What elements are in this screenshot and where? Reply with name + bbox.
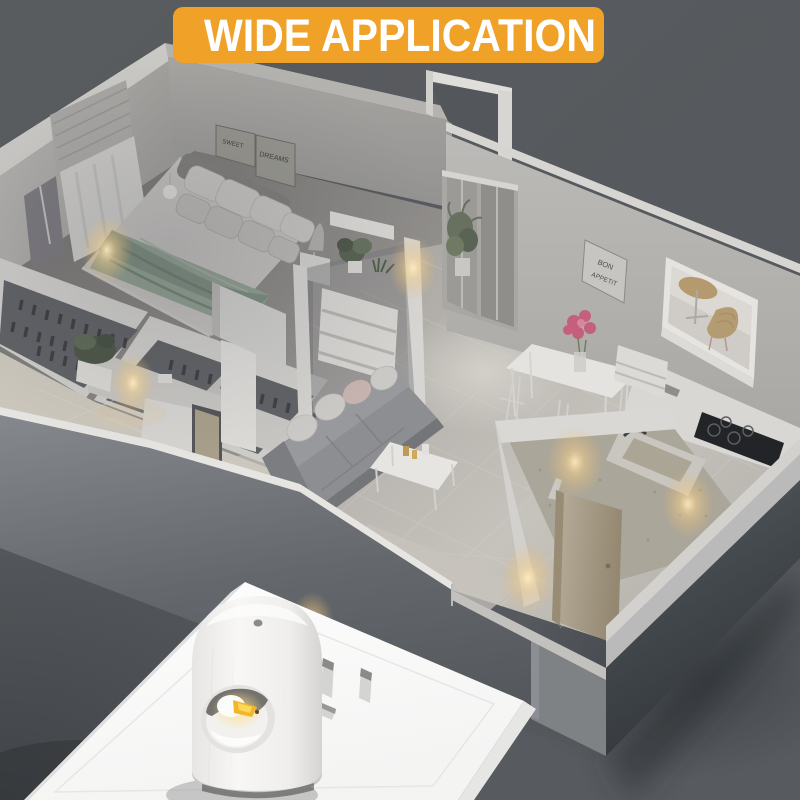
svg-text:WIDE APPLICATION: WIDE APPLICATION (204, 10, 596, 61)
